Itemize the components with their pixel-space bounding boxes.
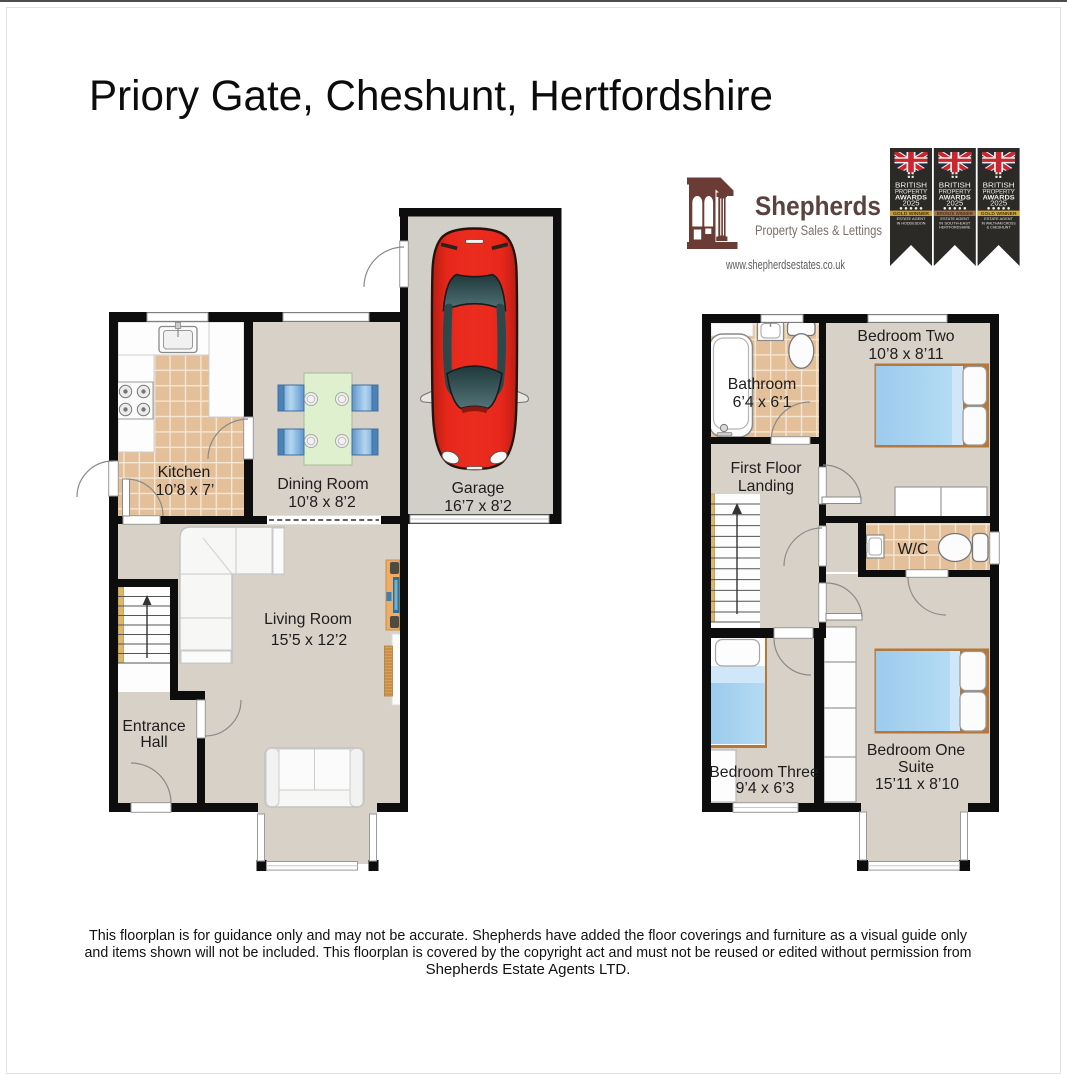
svg-text:16’7 x 8’2: 16’7 x 8’2	[444, 498, 512, 515]
svg-text:Bedroom One: Bedroom One	[867, 742, 966, 759]
svg-text:Hall: Hall	[140, 734, 167, 751]
svg-text:2025: 2025	[903, 201, 920, 208]
svg-text:10’8 x 8’2: 10’8 x 8’2	[288, 494, 356, 511]
svg-text:15’5 x 12’2: 15’5 x 12’2	[271, 632, 347, 649]
svg-text:Living Room: Living Room	[264, 611, 352, 628]
svg-text:Property Sales & Lettings: Property Sales & Lettings	[755, 223, 882, 238]
svg-text:Garage: Garage	[452, 480, 505, 497]
svg-text:BRONZE WINNER: BRONZE WINNER	[937, 211, 974, 216]
svg-text:and items shown will not be in: and items shown will not be included. Th…	[85, 944, 972, 961]
svg-text:Bedroom Three: Bedroom Three	[709, 764, 819, 781]
svg-text:This floorplan is for guidance: This floorplan is for guidance only and …	[89, 927, 967, 944]
svg-text:15’11 x 8’10: 15’11 x 8’10	[875, 776, 959, 793]
svg-text:W/C: W/C	[898, 541, 929, 558]
svg-text:10’8 x 7’: 10’8 x 7’	[156, 482, 215, 499]
svg-text:BRITISH: BRITISH	[939, 181, 971, 190]
svg-text:Landing: Landing	[738, 478, 794, 495]
svg-text:6’4 x 6’1: 6’4 x 6’1	[733, 394, 792, 411]
svg-text:Suite: Suite	[898, 759, 934, 776]
svg-text:BRITISH: BRITISH	[895, 181, 927, 190]
svg-text:2025: 2025	[946, 201, 963, 208]
svg-text:2025: 2025	[990, 201, 1007, 208]
svg-text:Shepherds Estate Agents LTD.: Shepherds Estate Agents LTD.	[426, 961, 631, 978]
svg-text:Shepherds: Shepherds	[755, 191, 881, 221]
svg-text:& CHESHUNT: & CHESHUNT	[987, 226, 1012, 230]
svg-text:IN HODDESDON: IN HODDESDON	[897, 221, 926, 225]
svg-text:10’8 x 8’11: 10’8 x 8’11	[868, 346, 943, 363]
svg-text:Entrance: Entrance	[122, 718, 185, 735]
svg-text:GOLD WINNER: GOLD WINNER	[981, 211, 1018, 216]
svg-text:HERTFORDSHIRE: HERTFORDSHIRE	[939, 226, 971, 230]
svg-text:First Floor: First Floor	[730, 460, 801, 477]
svg-text:Dining Room: Dining Room	[277, 476, 368, 493]
svg-text:Bathroom: Bathroom	[728, 376, 797, 393]
svg-text:Priory Gate, Cheshunt, Hertfor: Priory Gate, Cheshunt, Hertfordshire	[89, 73, 773, 120]
svg-text:BRITISH: BRITISH	[983, 181, 1015, 190]
svg-text:9’4 x 6’3: 9’4 x 6’3	[736, 780, 795, 797]
svg-text:Bedroom Two: Bedroom Two	[857, 328, 954, 345]
svg-text:GOLD WINNER: GOLD WINNER	[893, 211, 930, 216]
svg-text:Kitchen: Kitchen	[158, 464, 211, 481]
svg-text:www.shepherdsestates.co.uk: www.shepherdsestates.co.uk	[725, 258, 845, 272]
